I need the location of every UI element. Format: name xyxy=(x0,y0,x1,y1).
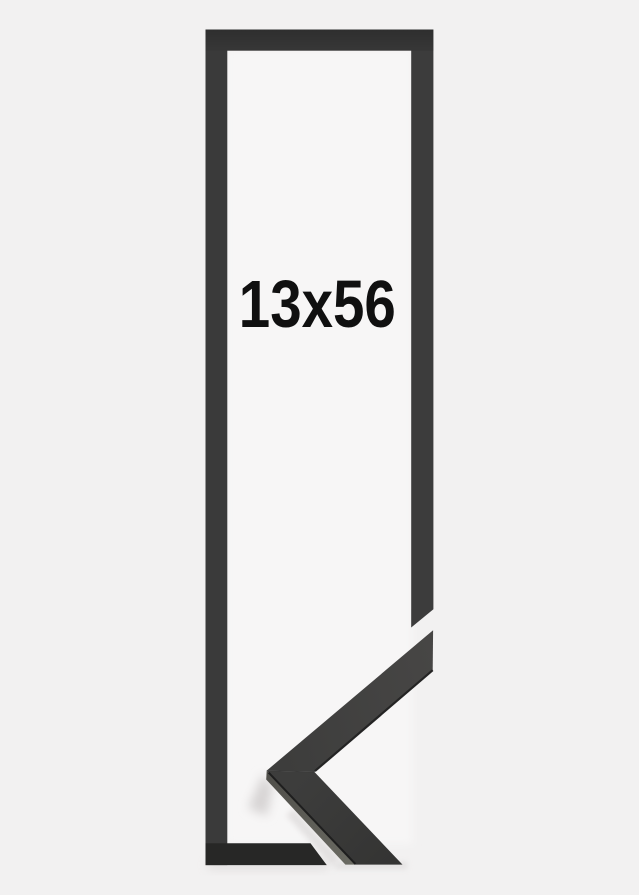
svg-text:13x56: 13x56 xyxy=(239,267,396,342)
